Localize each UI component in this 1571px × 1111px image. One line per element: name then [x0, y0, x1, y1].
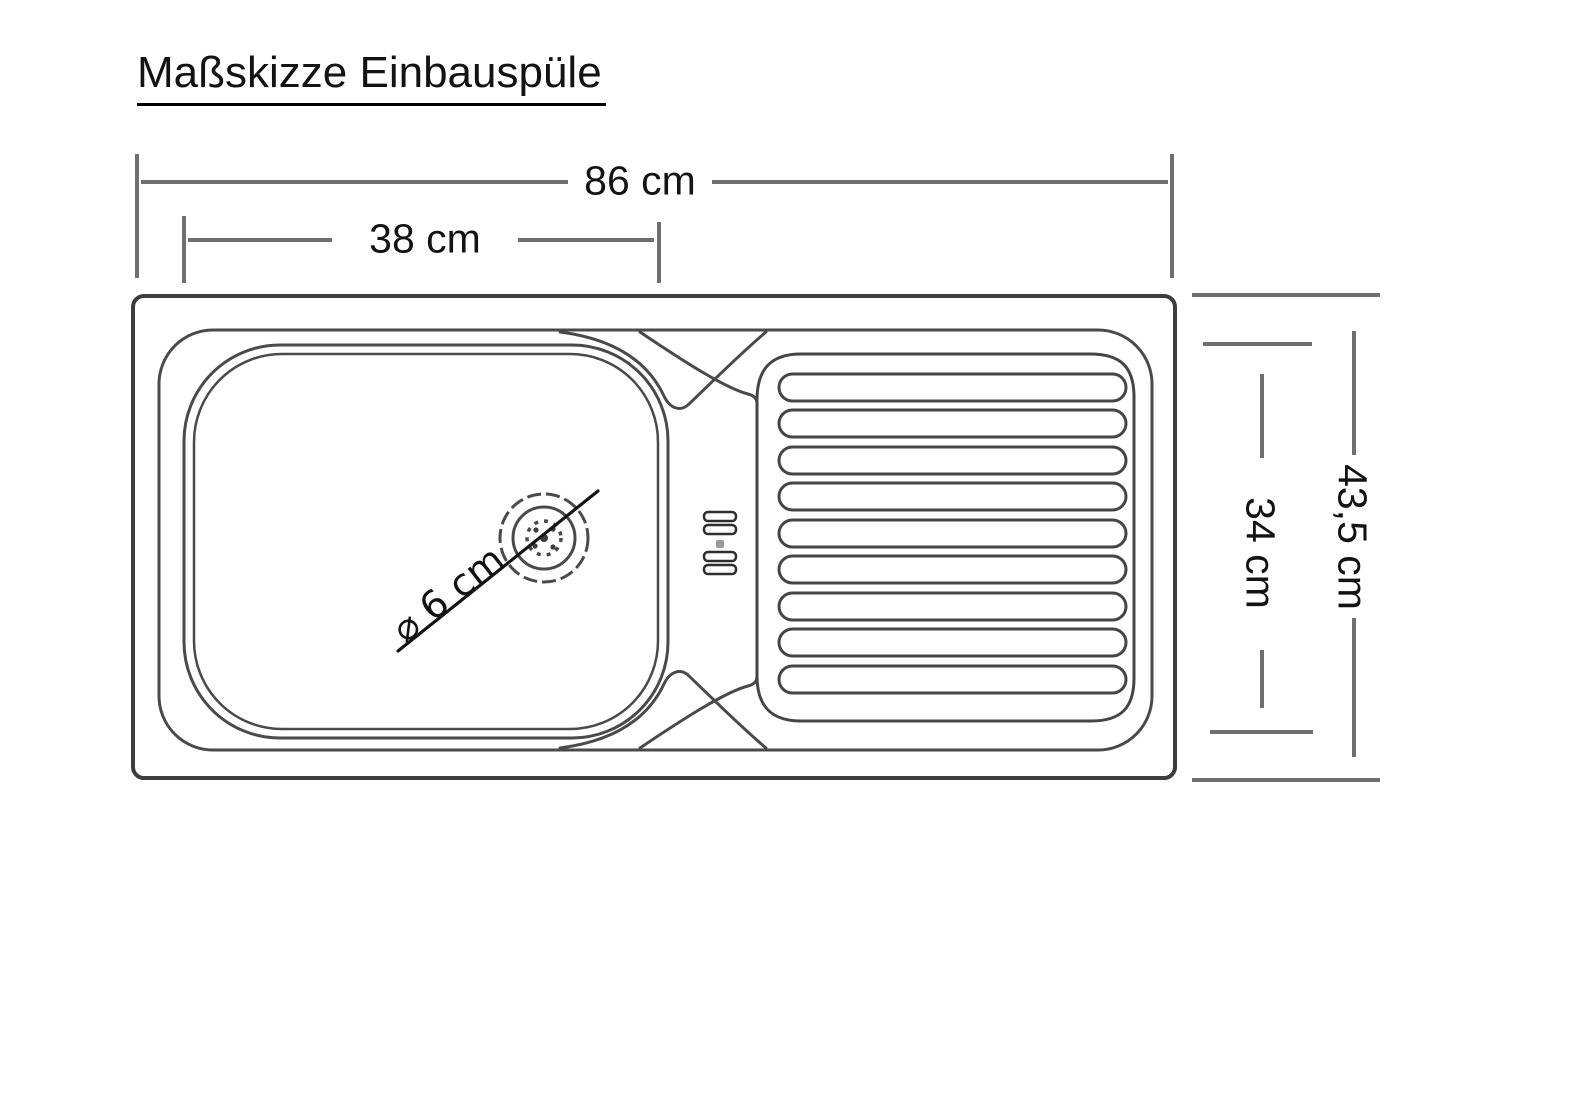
rib — [779, 666, 1126, 693]
tap-hole-dot — [716, 540, 724, 548]
rib — [779, 556, 1126, 583]
bowl — [184, 345, 668, 738]
dim-label-bowl-width: 38 cm — [369, 216, 481, 263]
drain-hole-dot — [533, 527, 538, 532]
drainboard — [757, 354, 1134, 721]
page-title: Maßskizze Einbauspüle — [137, 48, 606, 106]
rib — [779, 629, 1126, 656]
page: Maßskizze Einbauspüle 86 cm 38 cm 43,5 c… — [0, 0, 1571, 1111]
rib — [779, 593, 1126, 620]
drain-hole-dot — [550, 544, 555, 549]
sink-outer-edge — [133, 296, 1175, 778]
rib — [779, 374, 1126, 401]
tap-hole-bar — [704, 552, 736, 561]
bowl-outer-line — [184, 345, 668, 738]
tap-hole-bar — [704, 512, 736, 521]
neck-top-dip — [560, 332, 766, 408]
tap-hole-marks — [704, 512, 736, 574]
neck-and-funnel — [560, 332, 766, 748]
rib — [779, 520, 1126, 547]
tap-hole-bar — [704, 565, 736, 574]
rib — [779, 410, 1126, 437]
rib — [779, 483, 1126, 510]
dim-label-inner-depth: 34 cm — [1237, 497, 1284, 609]
sink-outline — [133, 296, 1175, 778]
tap-hole-bar — [704, 525, 736, 534]
rib — [779, 447, 1126, 474]
drainboard-ribs — [779, 374, 1126, 693]
dim-label-total-depth: 43,5 cm — [1329, 464, 1376, 610]
drain — [500, 494, 588, 582]
dim-label-total-width: 86 cm — [584, 158, 696, 205]
